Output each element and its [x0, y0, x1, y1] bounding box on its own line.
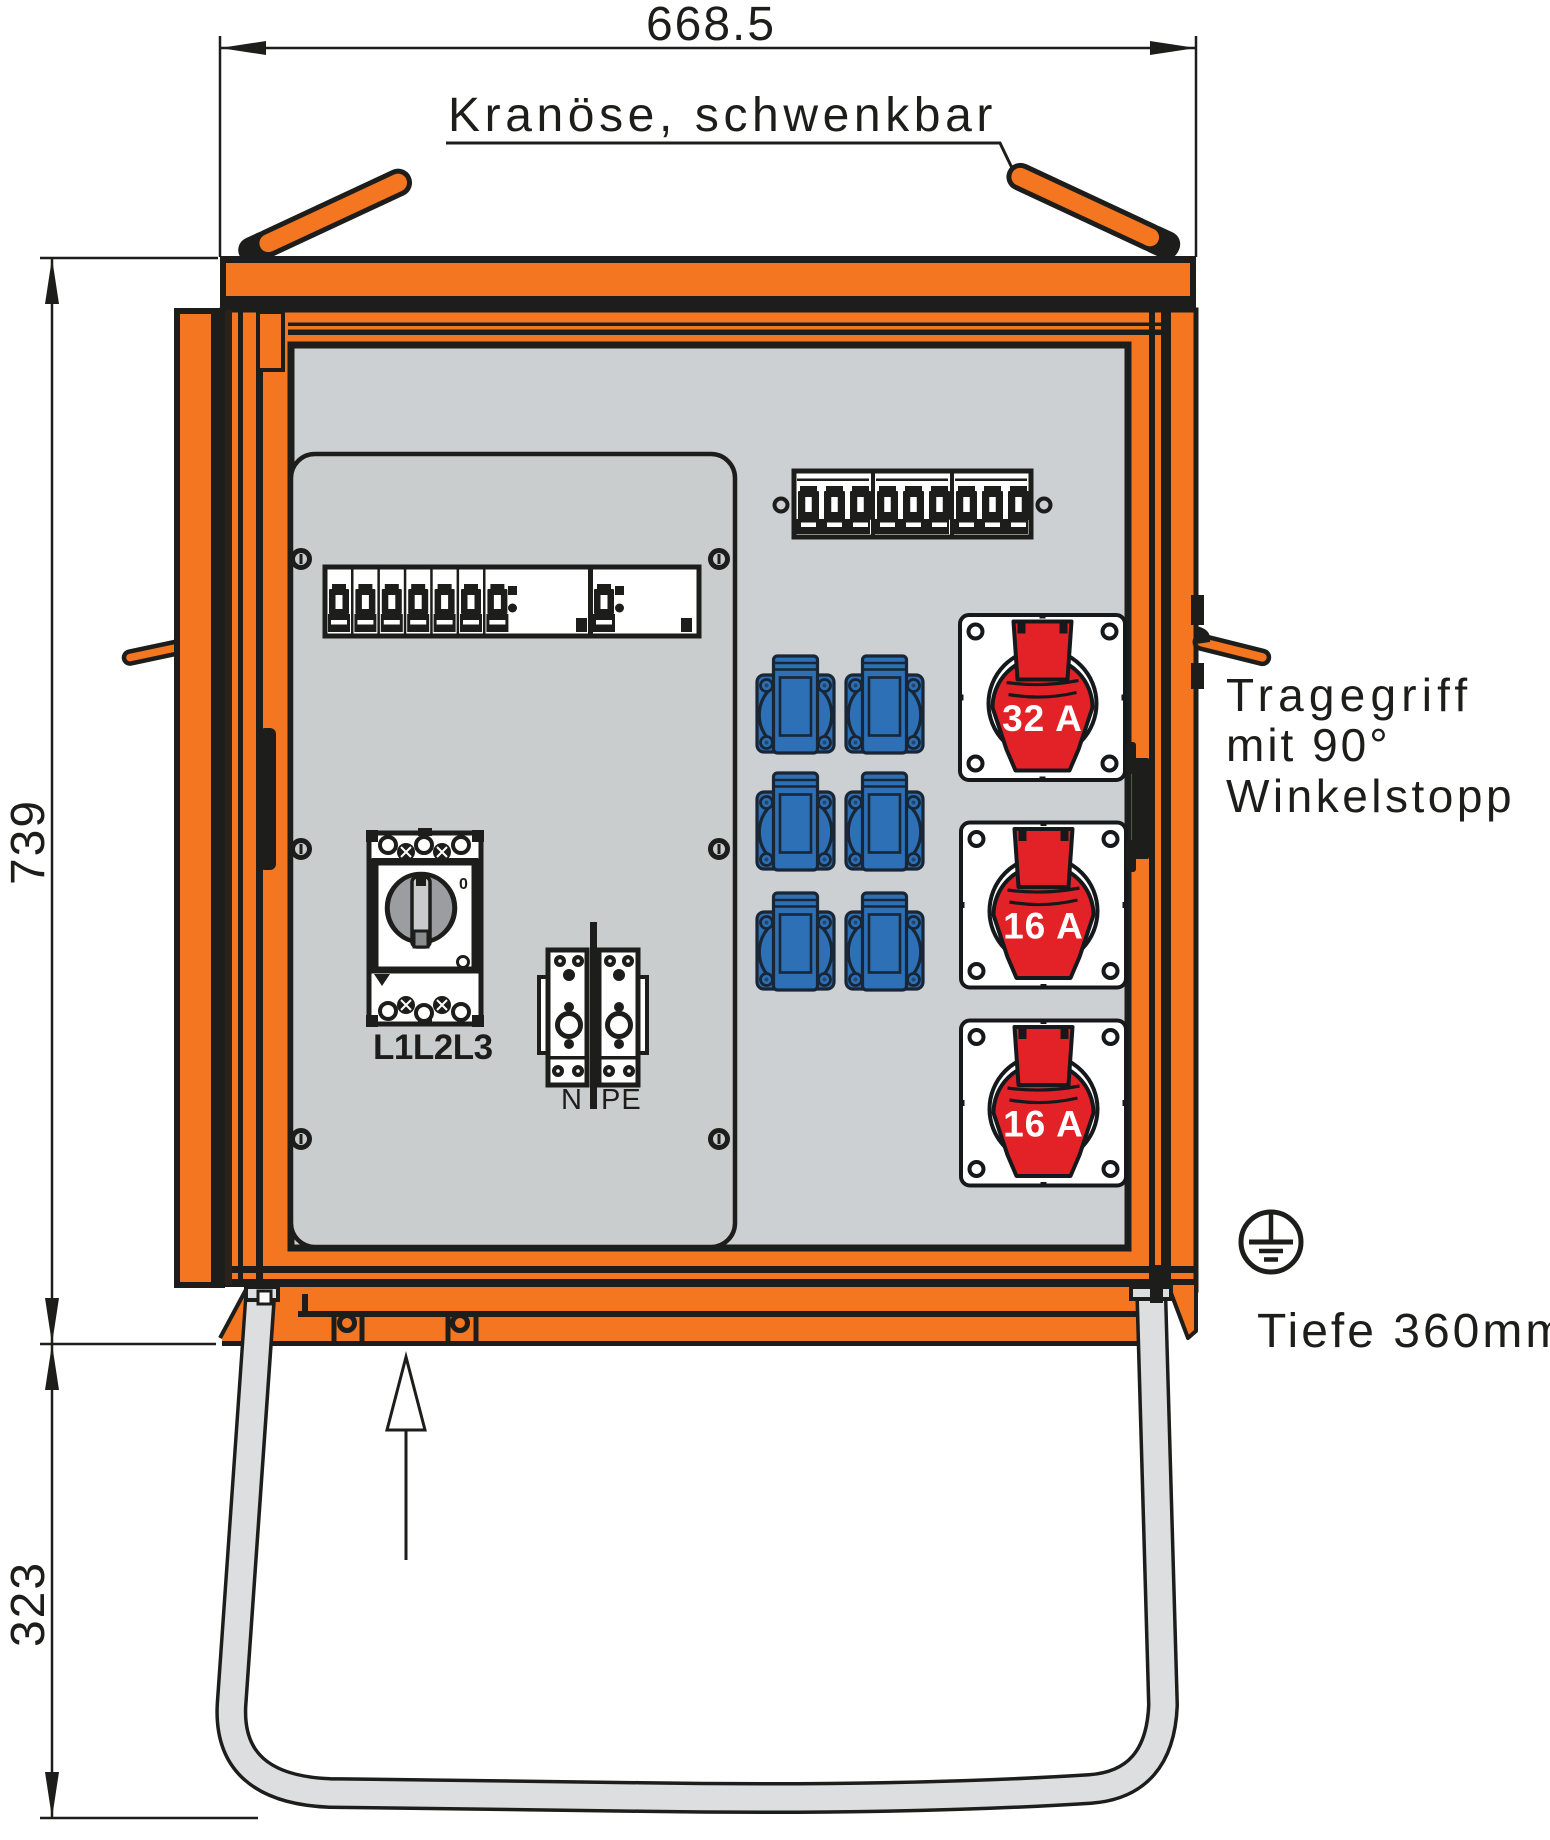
svg-text:N: N	[561, 1084, 582, 1116]
svg-text:668.5: 668.5	[646, 0, 776, 51]
svg-text:Tiefe 360mm: Tiefe 360mm	[1257, 1305, 1550, 1358]
svg-text:Winkelstopp: Winkelstopp	[1226, 770, 1515, 822]
svg-text:Kranöse, schwenkbar: Kranöse, schwenkbar	[448, 89, 997, 142]
svg-text:32 A: 32 A	[1002, 698, 1083, 739]
svg-text:Tragegriff: Tragegriff	[1226, 669, 1472, 721]
svg-text:16 A: 16 A	[1003, 1104, 1084, 1145]
svg-text:739: 739	[2, 799, 55, 885]
svg-text:0: 0	[459, 876, 468, 893]
svg-text:PE: PE	[601, 1084, 642, 1116]
svg-text:16 A: 16 A	[1003, 906, 1084, 947]
svg-text:mit 90°: mit 90°	[1226, 719, 1391, 771]
svg-text:L1L2L3: L1L2L3	[373, 1028, 493, 1067]
svg-text:323: 323	[2, 1561, 55, 1647]
